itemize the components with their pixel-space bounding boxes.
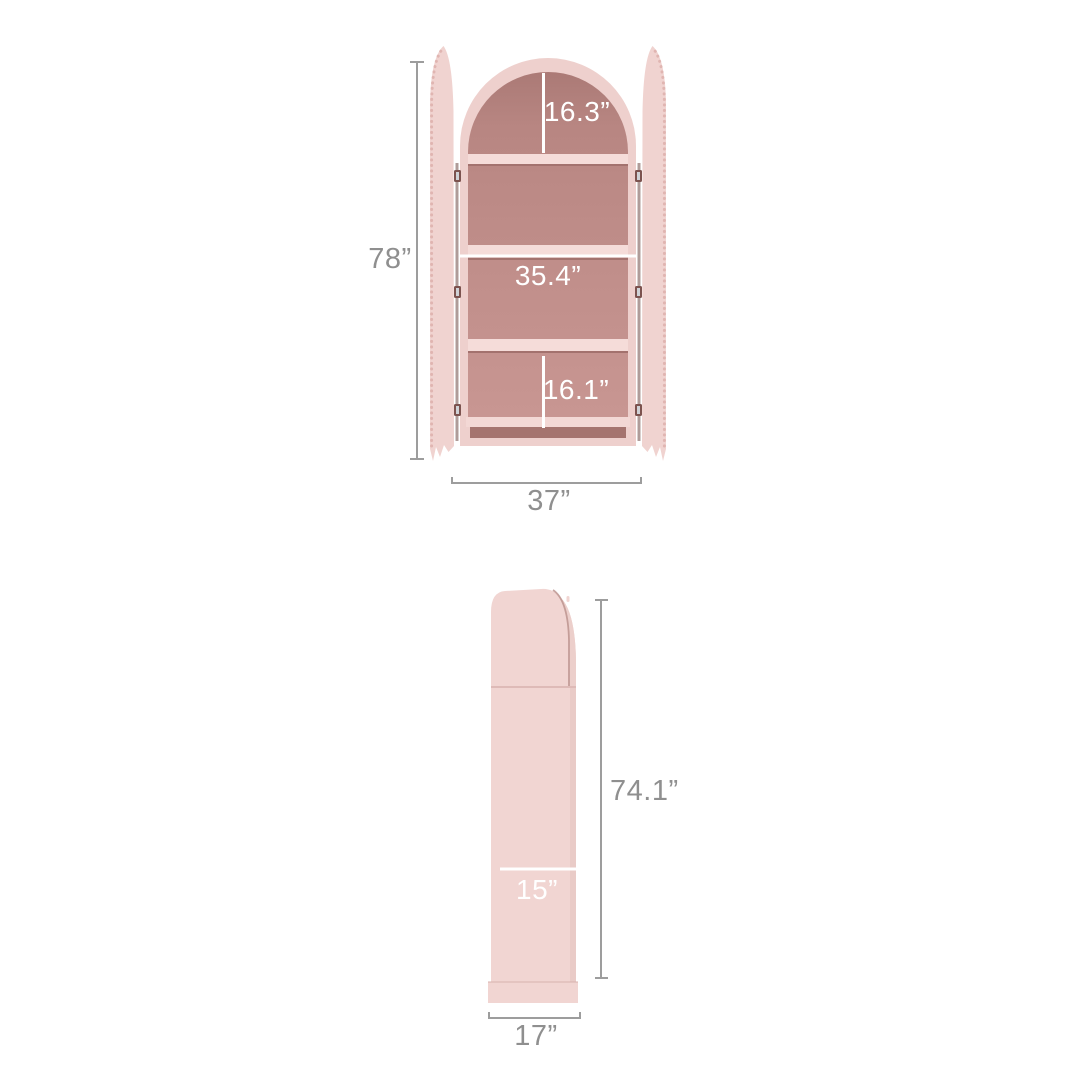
front-width-dimension: 37” bbox=[452, 477, 641, 517]
front-height-dimension: 78” bbox=[368, 62, 424, 459]
bead-tip-icon bbox=[497, 596, 500, 602]
overall-depth-dimension: 17” bbox=[489, 1012, 580, 1052]
diagram-canvas: 78” bbox=[0, 0, 1080, 1080]
left-door bbox=[430, 46, 454, 461]
side-height-label: 74.1” bbox=[610, 775, 679, 807]
side-view-figure: 74.1” 15” 17” bbox=[420, 550, 700, 1070]
shelf bbox=[468, 245, 628, 255]
interior-width-label: 35.4” bbox=[515, 260, 581, 291]
overall-depth-label: 17” bbox=[514, 1020, 557, 1052]
arch-height-label: 16.3” bbox=[544, 96, 610, 127]
side-edge-shade bbox=[570, 688, 576, 982]
left-door-panel bbox=[430, 46, 454, 461]
door-gap bbox=[638, 163, 641, 441]
shelf-shadow bbox=[468, 164, 628, 166]
hinge-pin-icon bbox=[637, 288, 640, 296]
lower-height-label: 16.1” bbox=[543, 374, 609, 405]
side-panel bbox=[491, 589, 576, 982]
side-height-dimension: 74.1” bbox=[595, 600, 679, 978]
floor-panel bbox=[466, 417, 630, 427]
door-gap bbox=[456, 163, 459, 441]
front-width-label: 37” bbox=[527, 485, 570, 517]
front-view-figure: 78” bbox=[350, 20, 710, 530]
right-door bbox=[642, 46, 666, 461]
interior-depth-label: 15” bbox=[516, 874, 558, 905]
bead-tip-icon bbox=[567, 596, 570, 602]
right-door-panel bbox=[642, 46, 666, 461]
shelf bbox=[468, 154, 628, 164]
toe-kick bbox=[470, 427, 626, 438]
shelf-shadow bbox=[468, 351, 628, 353]
hinge-pin-icon bbox=[456, 288, 459, 296]
hinge-pin-icon bbox=[637, 172, 640, 180]
hinge-pin-icon bbox=[456, 406, 459, 414]
shelf bbox=[468, 339, 628, 351]
base-plinth bbox=[488, 982, 578, 1003]
front-height-label: 78” bbox=[368, 243, 411, 275]
hinge-pin-icon bbox=[456, 172, 459, 180]
hinge-pin-icon bbox=[637, 406, 640, 414]
